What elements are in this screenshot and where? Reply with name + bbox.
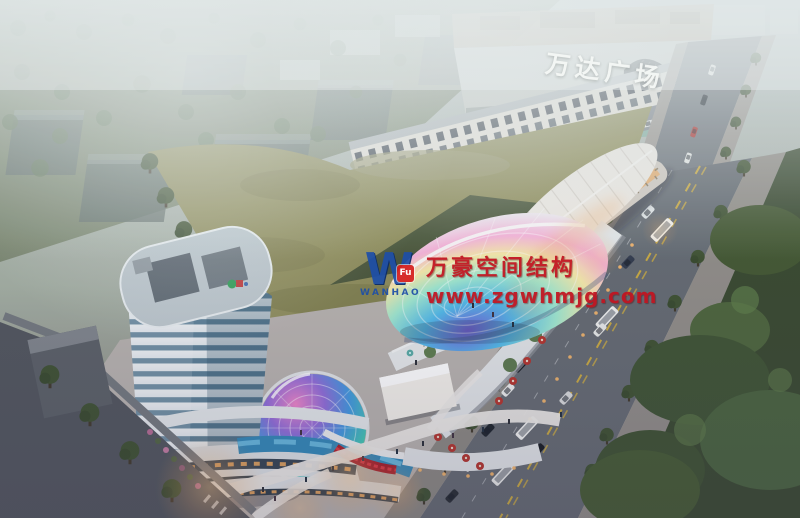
watermark-text: 万豪空间结构 www.zgwhmjg.com [426, 250, 657, 308]
watermark-website-url: www.zgwhmjg.com [426, 284, 657, 308]
watermark-logo: W Fu WANHAO [360, 248, 418, 298]
watermark: W Fu WANHAO 万豪空间结构 www.zgwhmjg.com [360, 248, 657, 308]
watermark-logo-name: WANHAO [360, 288, 418, 298]
watermark-logo-badge: Fu [397, 265, 414, 282]
aerial-rendering: 万达广场 W Fu WANHAO 万豪空间结构 www.zgwhmjg.com [0, 0, 800, 518]
watermark-company-title: 万豪空间结构 [426, 250, 657, 282]
